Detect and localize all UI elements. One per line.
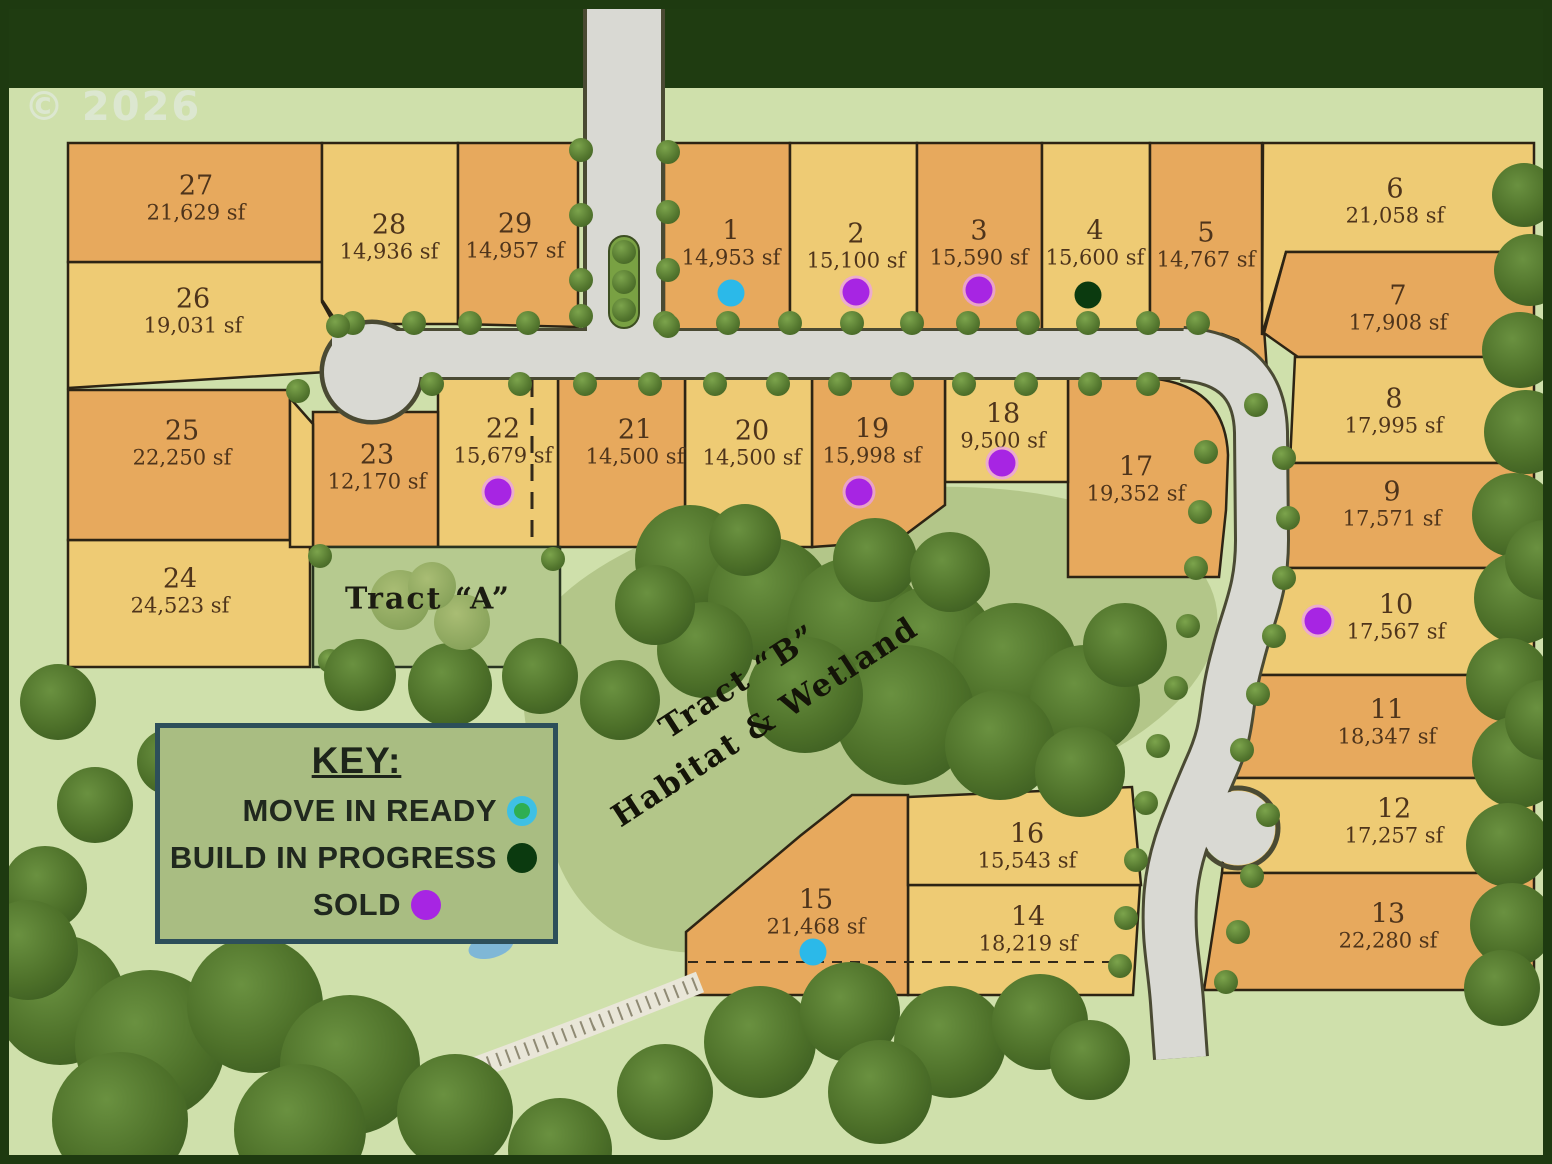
gravel-path — [432, 982, 700, 1084]
legend-label-build-in-progress: BUILD IN PROGRESS — [170, 840, 497, 876]
legend-item-build-in-progress: BUILD IN PROGRESS — [160, 840, 553, 876]
road-network — [0, 0, 1552, 1164]
road-median-island — [609, 236, 639, 328]
legend-title: KEY: — [160, 740, 553, 782]
subdivision-plat-map: 114,953 sf215,100 sf315,590 sf415,600 sf… — [0, 0, 1552, 1164]
legend-item-move-in-ready: MOVE IN READY — [160, 793, 553, 829]
legend: KEY: MOVE IN READY BUILD IN PROGRESS SOL… — [155, 723, 558, 944]
tract-a-label: Tract “A” — [345, 582, 511, 617]
build-in-progress-dot-icon — [507, 843, 537, 873]
copyright-watermark: © 2026 — [24, 84, 201, 130]
sold-dot-icon — [411, 890, 441, 920]
legend-label-move-in-ready: MOVE IN READY — [242, 793, 497, 829]
legend-label-sold: SOLD — [313, 887, 401, 923]
move-in-ready-dot-icon — [507, 796, 537, 826]
legend-item-sold: SOLD — [160, 887, 553, 923]
